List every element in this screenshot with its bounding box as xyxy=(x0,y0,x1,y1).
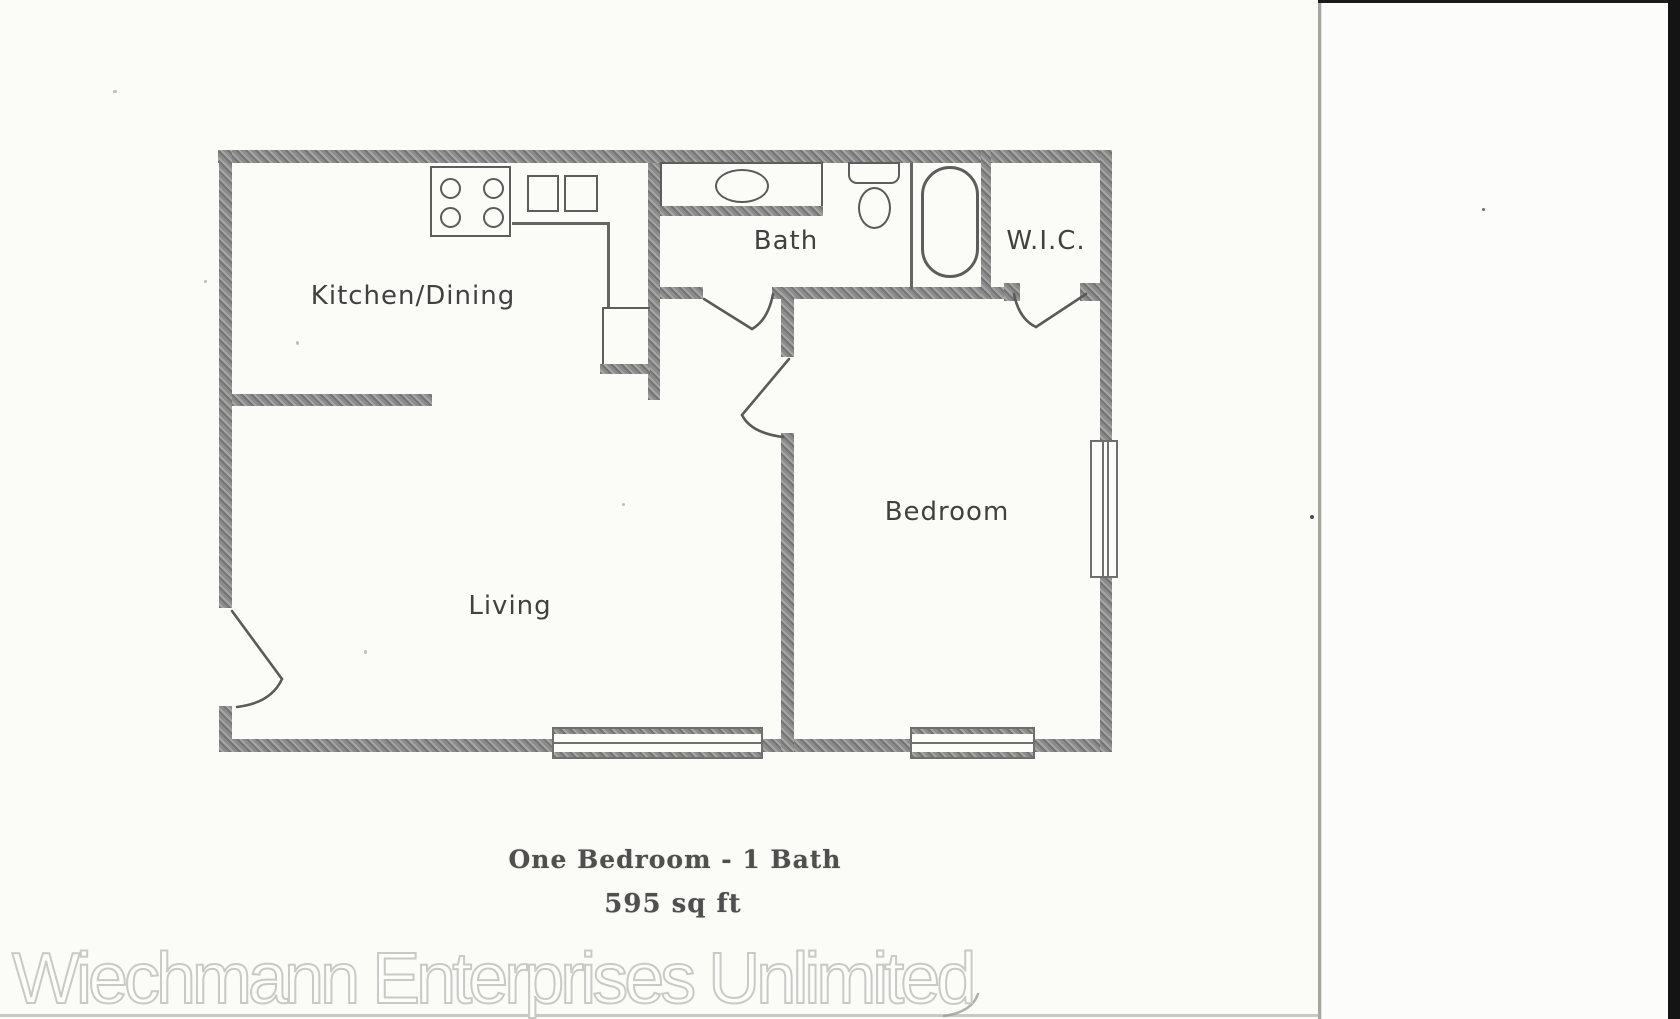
plan-title: One Bedroom - 1 Bath xyxy=(509,845,842,874)
scan-speck xyxy=(204,280,207,283)
wall-right-upper xyxy=(1100,150,1112,440)
scan-speck xyxy=(296,341,299,345)
counter-edge-horizontal xyxy=(512,222,610,225)
kitchen-sink-right-icon xyxy=(564,175,598,212)
scan-right-edge-bar xyxy=(1668,0,1680,1019)
bedroom-label: Bedroom xyxy=(885,497,1010,527)
entry-door-swing xyxy=(232,611,282,707)
toilet-tank-icon xyxy=(848,162,900,184)
scanner-background-panel xyxy=(1321,0,1668,1019)
living-label: Living xyxy=(468,591,551,621)
scan-speck xyxy=(1482,208,1485,211)
wall-bottom-left xyxy=(219,739,552,752)
scan-speck xyxy=(622,503,625,506)
window-frame-bar xyxy=(912,752,1033,757)
vanity-sink-icon xyxy=(715,169,769,203)
stove-burner-icon xyxy=(483,207,504,228)
bedroom-window-south xyxy=(910,727,1035,759)
window-glass-line xyxy=(912,742,1033,744)
wall-tub-wic xyxy=(981,150,991,299)
bedroom-door-swing xyxy=(742,359,789,437)
window-frame-bar xyxy=(912,729,1033,734)
pantry-closet-bottom xyxy=(600,364,650,374)
scan-speck xyxy=(364,650,367,654)
vanity-front-edge xyxy=(660,206,823,216)
window-glass-line xyxy=(1107,442,1109,576)
counter-edge-vertical xyxy=(607,222,610,309)
wic-door-jamb-right xyxy=(1080,283,1100,301)
kitchen-dining-label: Kitchen/Dining xyxy=(311,281,515,311)
scan-top-edge xyxy=(1318,0,1680,3)
company-watermark: Wiechmann Enterprises Unlimited xyxy=(12,938,972,1019)
wic-door-jamb-left xyxy=(1004,283,1020,301)
scan-speck xyxy=(1310,515,1314,519)
window-frame-bar xyxy=(554,752,761,757)
window-frame-bar xyxy=(554,729,761,734)
bath-label: Bath xyxy=(754,226,818,256)
wic-label: W.I.C. xyxy=(1006,226,1085,256)
bathtub-icon xyxy=(921,166,979,278)
stove-icon xyxy=(430,166,511,237)
pantry-closet xyxy=(602,307,650,367)
wall-bath-bottom-left xyxy=(660,287,703,299)
bedroom-window-east xyxy=(1090,440,1118,578)
living-window xyxy=(552,727,763,759)
scan-speck xyxy=(113,90,117,93)
wall-right-lower xyxy=(1100,578,1112,752)
tub-alcove-line xyxy=(910,163,913,289)
stove-burner-icon xyxy=(440,207,461,228)
kitchen-sink-left-icon xyxy=(527,175,559,212)
toilet-bowl-icon xyxy=(858,187,891,229)
scanned-floor-plan-page: Kitchen/Dining Bath W.I.C. Bedroom Livin… xyxy=(0,0,1680,1019)
wall-bedroom-upper xyxy=(781,288,794,357)
page-fold-line xyxy=(1318,0,1321,1019)
window-glass-line xyxy=(554,742,761,744)
wall-left-upper xyxy=(219,150,232,608)
stove-burner-icon xyxy=(440,178,461,199)
bath-door-swing xyxy=(704,294,773,329)
plan-area: 595 sq ft xyxy=(604,889,741,919)
wall-bath-bottom-right xyxy=(772,287,1008,299)
stove-burner-icon xyxy=(483,178,504,199)
wic-door-swing xyxy=(1014,294,1086,327)
wall-bedroom-lower xyxy=(781,433,794,752)
wall-kitchen-living-stub xyxy=(232,394,432,406)
window-glass-line xyxy=(1102,442,1104,576)
